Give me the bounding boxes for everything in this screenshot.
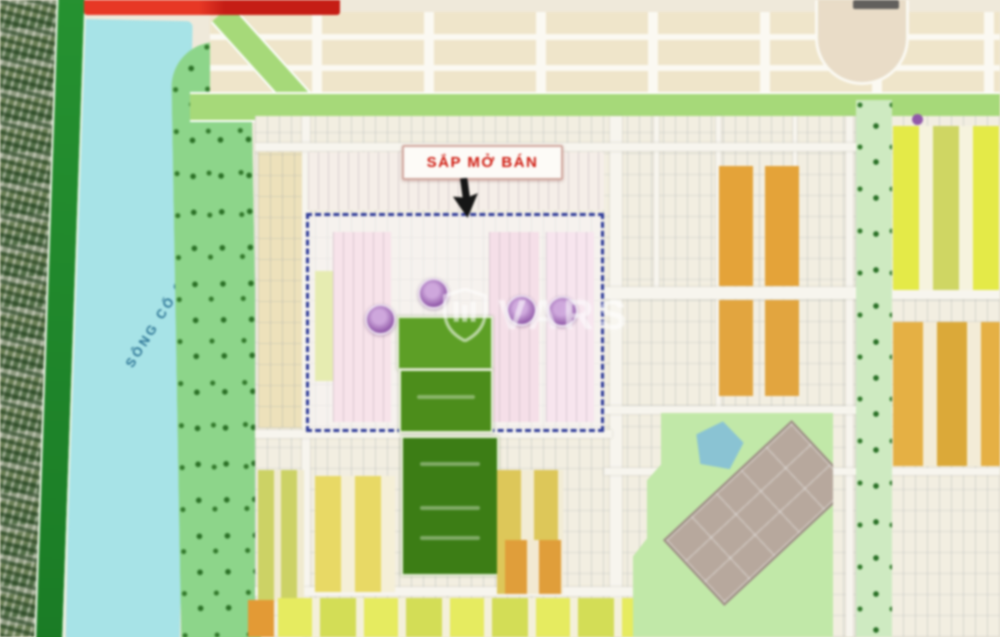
pond <box>691 417 746 471</box>
park-block <box>399 369 493 433</box>
orange-lot-block <box>248 600 274 637</box>
orange-lot-block <box>765 166 799 286</box>
sale-callout-box: SẮP MỞ BÁN <box>402 145 563 180</box>
watermark: VARS <box>442 288 632 342</box>
tree-lined-road <box>856 100 892 637</box>
yellow-lot-zone <box>893 126 1000 290</box>
road <box>610 116 622 637</box>
masterplan-map-canvas: SÔNG CỔ CÒ <box>0 0 1000 637</box>
orange-lot-block <box>765 300 799 396</box>
park-block <box>401 436 499 576</box>
orange-lot-block <box>719 166 753 286</box>
sale-callout-label: SẮP MỞ BÁN <box>427 154 539 171</box>
watermark-text: VARS <box>498 291 632 339</box>
faint-label-line <box>420 462 480 466</box>
small-amenity-marker <box>912 114 923 125</box>
yellow-bottom-band <box>278 598 646 637</box>
down-arrow-icon <box>450 178 482 220</box>
road <box>846 116 853 637</box>
yellow-lot-strips <box>315 476 395 592</box>
orange-lot-strips <box>505 540 563 594</box>
olive-lot-strips <box>258 470 304 602</box>
cutoff-road-label <box>853 0 899 9</box>
amenity-marker <box>365 304 396 335</box>
shield-icon <box>442 288 488 342</box>
faint-label-line <box>420 536 480 540</box>
building-footprint <box>663 420 853 606</box>
faint-label-line <box>420 506 480 510</box>
faint-label-line <box>417 395 475 399</box>
riverside-park <box>171 41 261 637</box>
top-banner <box>84 0 340 15</box>
cream-lot-column <box>258 152 302 428</box>
orange-lot-block <box>719 300 753 396</box>
orange-lot-zone <box>893 322 1000 466</box>
map-layer: SÔNG CỔ CÒ <box>0 0 1000 637</box>
campus-green-area <box>633 413 833 637</box>
